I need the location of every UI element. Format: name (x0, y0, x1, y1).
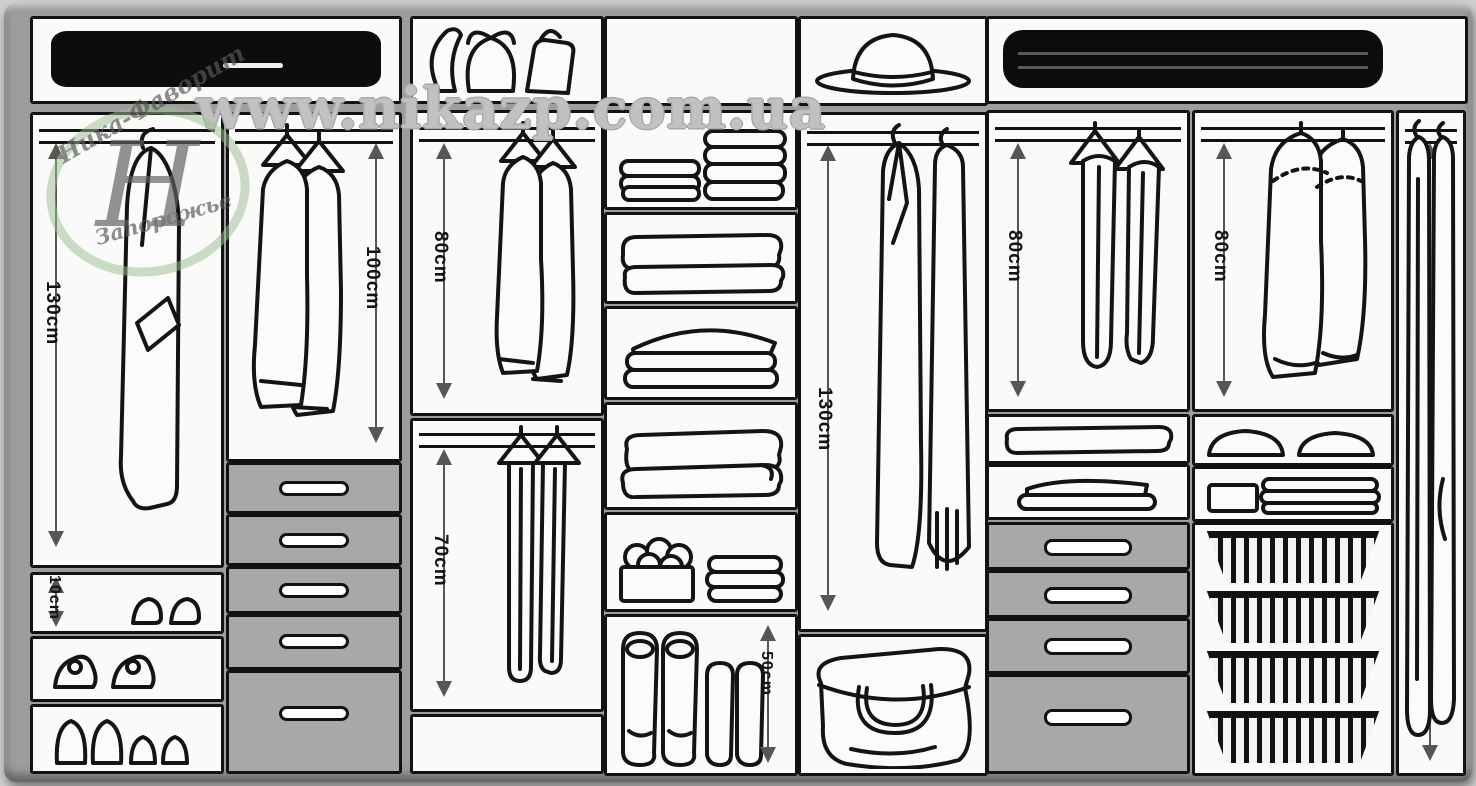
blanket-icon (997, 423, 1179, 455)
drawer-handle (279, 481, 349, 496)
drawer (226, 514, 402, 566)
wire-basket-icon (1205, 591, 1381, 643)
shoes-icon (49, 647, 199, 693)
hanging-rod (419, 433, 595, 448)
drawer (986, 570, 1190, 618)
shoes-icon (47, 713, 207, 767)
drawer (226, 614, 402, 670)
shelf-big-blanket (604, 402, 798, 510)
hanging-rod (995, 127, 1181, 142)
shelf-socks-and-towels (604, 512, 798, 612)
section-long-garments: 130cm (798, 112, 988, 632)
drawer-handle (1044, 638, 1132, 655)
long-garments-icon (855, 123, 983, 623)
wire-basket-icon (1205, 711, 1381, 763)
shelf-folded-stack (1192, 466, 1394, 522)
hanging-rod (39, 129, 215, 144)
wardrobe-diagram: 130cm 10cm (0, 0, 1476, 786)
top-shelf-bags (410, 16, 604, 104)
hanging-rod (807, 131, 979, 146)
dimension-label: 80cm (429, 231, 451, 284)
drawer (986, 522, 1190, 570)
section-jackets-hanging: 100cm (226, 112, 402, 462)
hanging-rod (419, 127, 595, 142)
dimension-label: 100cm (361, 246, 383, 310)
section-sweaters: 80cm (1192, 110, 1394, 412)
hat-icon (805, 23, 981, 99)
shirts-icon (475, 121, 599, 409)
measure-arrow: 80cm (1215, 145, 1233, 395)
section-shoe-gap: 10cm (30, 572, 224, 634)
section-large-bag (798, 634, 988, 776)
sweaters-icon (1243, 121, 1389, 405)
top-shelf-garment-case (30, 16, 402, 104)
drawer-handle (1044, 587, 1132, 604)
drawer-handle (1044, 539, 1132, 556)
shelf-folded-blanket (986, 414, 1190, 464)
folded-stack-icon (1201, 473, 1385, 515)
measure-arrow: 130cm (47, 145, 65, 545)
measure-arrow: 70cm (435, 451, 453, 695)
section-shoes-bottom (30, 704, 224, 774)
section-coat-hanging: 130cm (30, 112, 224, 568)
blanket-icon (613, 419, 789, 499)
large-bag-icon (807, 641, 979, 769)
section-wire-baskets (1192, 522, 1394, 776)
top-shelf-hat (798, 16, 988, 106)
shelf-folded-towels (604, 306, 798, 400)
section-trousers-hanging: 70cm (410, 418, 604, 712)
dimension-label: 130cm (813, 387, 835, 451)
drawer-handle (279, 583, 349, 598)
dimension-label: 50cm (757, 651, 775, 696)
drawer-handle (279, 634, 349, 649)
boots-icon (615, 623, 765, 769)
drawer-handle (1044, 709, 1132, 726)
dimension-label: 80cm (1209, 230, 1231, 283)
section-dresses: 180cm (1396, 110, 1466, 776)
garment-case-icon (51, 31, 381, 87)
hanging-rod (1201, 127, 1385, 142)
towels-icon (613, 313, 789, 393)
shelf-folded-blankets (604, 212, 798, 304)
folded-stack-icon (613, 117, 789, 203)
dimension-label: 10cm (45, 575, 63, 620)
section-draped-trousers: 80cm (986, 110, 1190, 412)
socks-box-icon (615, 521, 787, 605)
wire-basket-icon (1205, 651, 1381, 703)
section-boots: 50cm (604, 614, 798, 776)
drawer (226, 566, 402, 614)
drawer-handle (279, 533, 349, 548)
drawer (986, 674, 1190, 774)
jackets-icon (231, 123, 371, 453)
measure-arrow: 10cm (47, 579, 65, 625)
drawer (986, 618, 1190, 674)
dresses-icon (1403, 119, 1459, 767)
folded-piles-icon (1201, 423, 1385, 459)
measure-arrow: 80cm (1009, 145, 1027, 395)
blanket-icon (613, 221, 789, 295)
measure-arrow: 50cm (759, 627, 777, 761)
wire-basket-icon (1205, 531, 1381, 583)
drawer (226, 670, 402, 774)
hanging-rod (235, 129, 393, 144)
drawer (226, 462, 402, 514)
dimension-label: 80cm (1003, 230, 1025, 283)
section-empty-shelf (410, 714, 604, 774)
dimension-label: 70cm (429, 534, 451, 587)
measure-arrow: 80cm (435, 145, 453, 397)
top-shelf-suitcase (986, 16, 1468, 104)
shelf-folded-stack (986, 464, 1190, 520)
top-shelf-empty (604, 16, 798, 106)
hanging-trousers-icon (479, 425, 599, 701)
suitcase-icon (1003, 30, 1383, 88)
dimension-label: 130cm (41, 281, 63, 345)
section-shirts-hanging: 80cm (410, 110, 604, 416)
folded-stack-icon (997, 471, 1179, 513)
coat-icon (93, 127, 213, 557)
shelf-folded-stacks (604, 110, 798, 210)
measure-arrow: 100cm (367, 145, 385, 441)
shoes-icon (125, 589, 215, 627)
shelf-folded-piles (1192, 414, 1394, 466)
section-shoes-mid (30, 636, 224, 702)
measure-arrow: 130cm (819, 147, 837, 609)
drawer-handle (279, 706, 349, 721)
draped-trousers-icon (1047, 121, 1181, 405)
bags-icon (415, 21, 597, 95)
